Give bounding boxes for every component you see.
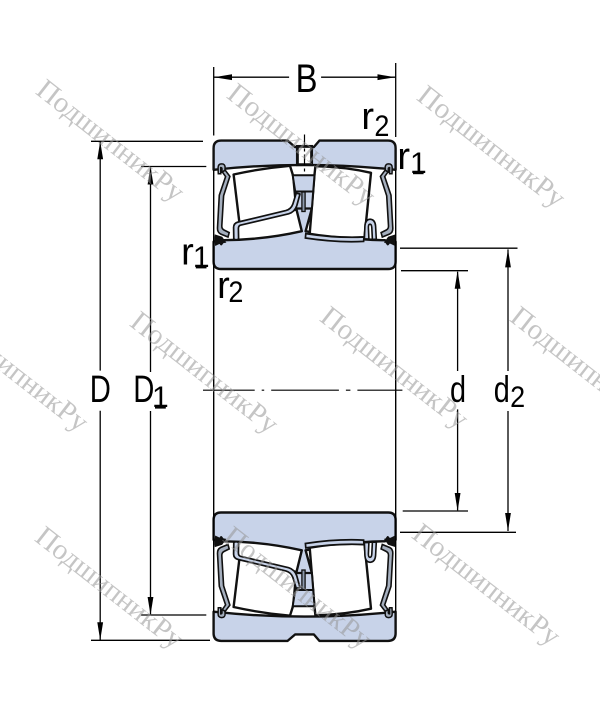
svg-text:r: r xyxy=(397,136,410,178)
svg-text:1: 1 xyxy=(152,381,169,414)
svg-text:2: 2 xyxy=(510,381,525,415)
svg-text:ПодшипникРу: ПодшипникРу xyxy=(29,520,190,655)
svg-text:ПодшипникРу: ПодшипникРу xyxy=(0,303,95,438)
svg-text:d: d xyxy=(494,370,510,411)
svg-text:ПодшипникРу: ПодшипникРу xyxy=(504,300,600,435)
svg-text:1: 1 xyxy=(193,241,210,274)
svg-text:ПодшипникРу: ПодшипникРу xyxy=(314,300,475,435)
svg-text:D: D xyxy=(90,368,111,411)
svg-text:r: r xyxy=(361,96,374,138)
svg-text:B: B xyxy=(296,56,318,101)
svg-text:ПодшипникРу: ПодшипникРу xyxy=(406,517,567,652)
svg-text:2: 2 xyxy=(374,110,389,144)
svg-text:ПодшипникРу: ПодшипникРу xyxy=(411,79,572,214)
svg-text:2: 2 xyxy=(228,276,243,310)
svg-text:1: 1 xyxy=(410,147,427,180)
